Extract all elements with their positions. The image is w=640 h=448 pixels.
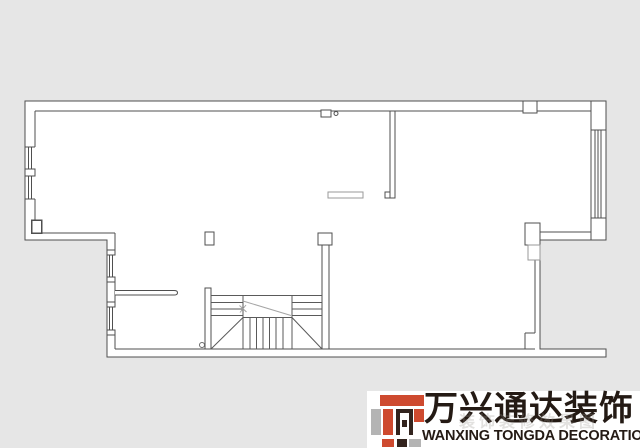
floor-plan (0, 0, 640, 448)
partition-top-room (390, 111, 395, 198)
column-stair-right (318, 233, 332, 245)
partition-foot (385, 192, 390, 198)
stair-wall-left (205, 288, 211, 349)
stair-wall-right (322, 245, 329, 349)
logo-block (383, 409, 393, 435)
brand-watermark-panel: 万兴通达装饰 WANXING TONGDA DECORATION 装饰装修效果图 (367, 391, 640, 448)
logo-block (371, 409, 381, 435)
top-wall-notch (523, 101, 537, 113)
logo-door-glyph (396, 409, 413, 435)
logo-block (409, 439, 421, 447)
column-left-step (32, 220, 42, 233)
logo-block (382, 439, 394, 447)
pier-right-lower (591, 218, 606, 240)
beam-outline (328, 192, 363, 198)
partial-wall-door (115, 291, 178, 296)
company-name-chinese: 万兴通达装饰 (424, 392, 634, 426)
column-small-square (205, 232, 214, 245)
pier-top-right (591, 101, 606, 130)
company-name-english: WANXING TONGDA DECORATION (422, 429, 640, 444)
logo-block (397, 439, 407, 447)
wanxing-tongda-logo-icon (369, 392, 425, 447)
logo-block (414, 409, 424, 422)
top-wall-fixture (321, 110, 331, 117)
logo-block (380, 395, 424, 406)
pier-terrace-left (525, 223, 540, 245)
pier-foot (528, 245, 540, 260)
screenshot-canvas: 万兴通达装饰 WANXING TONGDA DECORATION 装饰装修效果图 (0, 0, 640, 448)
